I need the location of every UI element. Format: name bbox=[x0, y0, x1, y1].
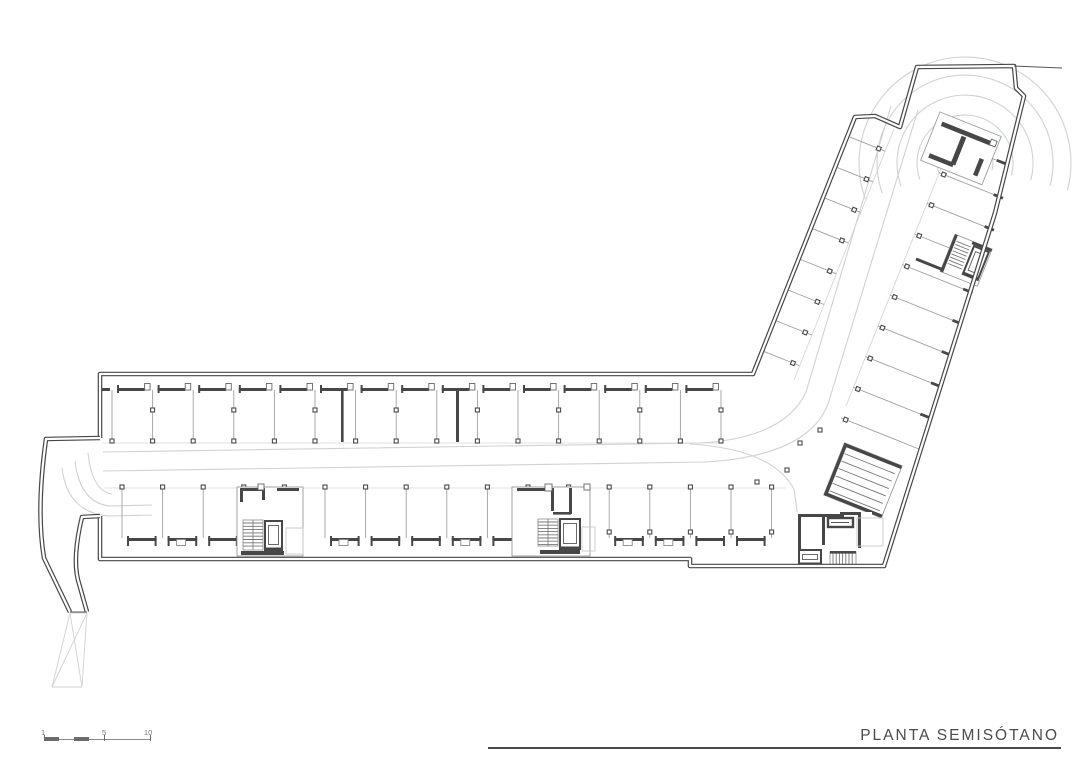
title-underline bbox=[488, 747, 1061, 749]
floor-plan-sheet: PLANTA SEMISÓTANO 1 5 10 bbox=[0, 0, 1086, 768]
scale-bar-line bbox=[44, 739, 150, 740]
drawing-title: PLANTA SEMISÓTANO bbox=[860, 727, 1059, 745]
floor-plan-drawing bbox=[0, 0, 1086, 768]
scale-bar-tick bbox=[44, 735, 45, 741]
scale-label-10: 10 bbox=[144, 728, 152, 737]
stair-cores bbox=[237, 112, 1001, 566]
horizontal-wing-bays bbox=[102, 384, 822, 547]
top-core bbox=[921, 112, 1002, 185]
scale-bar-segment bbox=[74, 737, 89, 741]
scale-bar-tick bbox=[104, 735, 105, 741]
junction-stair bbox=[824, 443, 902, 518]
scale-bar-segment bbox=[44, 737, 59, 741]
scale-bar-tick bbox=[150, 735, 151, 741]
scale-bar: 1 5 10 bbox=[40, 728, 152, 744]
